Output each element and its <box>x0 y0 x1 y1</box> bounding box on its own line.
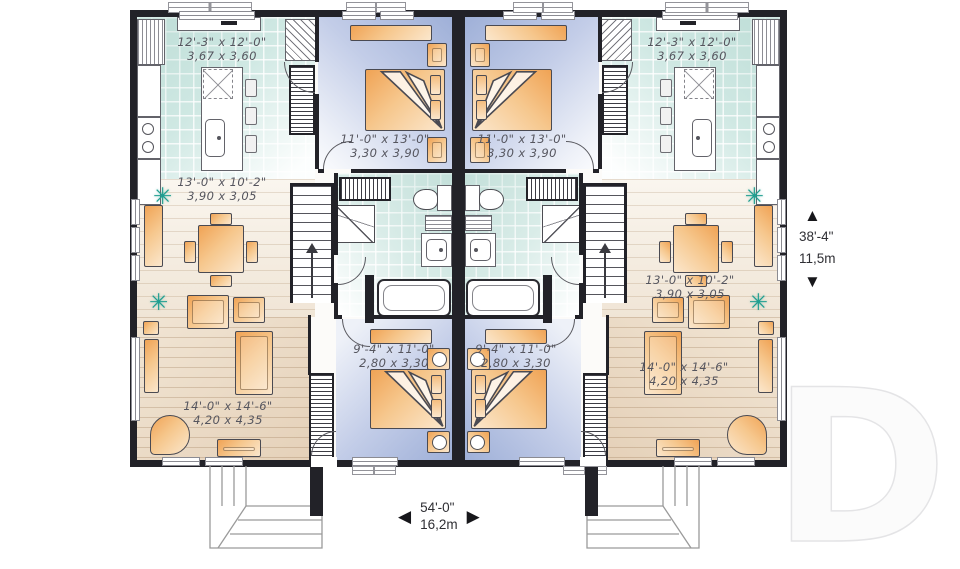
bath-closet <box>526 177 578 201</box>
room-label-kitchen-right: 12'-3" x 12'-0"3,67 x 3,60 <box>647 36 736 63</box>
burner-icon <box>763 141 775 153</box>
kitchen-cabinet <box>756 65 780 117</box>
unit-left: ✳ <box>137 17 452 460</box>
arrow-left-icon: ◀ <box>398 508 411 525</box>
stool-icon <box>245 107 257 125</box>
dresser <box>485 25 567 41</box>
burner-icon <box>142 123 154 135</box>
fridge-icon <box>137 19 165 65</box>
room-label-living-left: 14'-0" x 14'-6"4,20 x 4,35 <box>183 400 272 427</box>
entry-wall-stub-left <box>310 467 323 516</box>
overall-depth-dimension: ▲ 38'-4" 11,5m ▼ <box>799 207 836 290</box>
dining-chair <box>210 213 232 225</box>
toilet-tank <box>465 185 480 211</box>
room-label-dining-left: 13'-0" x 10'-2"3,90 x 3,05 <box>177 176 266 203</box>
fridge-icon <box>752 19 780 65</box>
stool-icon <box>660 79 672 97</box>
nightstand-lamp <box>467 431 490 453</box>
window <box>131 337 140 421</box>
arrow-down-icon: ▼ <box>804 273 821 290</box>
sideboard <box>144 205 163 267</box>
wall <box>579 283 583 319</box>
armchair <box>187 295 229 329</box>
stool-icon <box>245 135 257 153</box>
range-icon <box>680 21 696 25</box>
entry-wall-stub-right <box>585 467 598 516</box>
loveseat <box>235 331 273 395</box>
stool-icon <box>660 135 672 153</box>
window <box>352 457 398 466</box>
toilet-icon <box>479 189 504 210</box>
depth-metric: 11,5m <box>799 251 836 268</box>
window <box>519 457 565 466</box>
window <box>342 11 376 20</box>
window <box>777 227 786 253</box>
tv-bench <box>217 439 261 457</box>
range-icon <box>221 21 237 25</box>
pantry-hatch <box>600 19 632 61</box>
window <box>777 199 786 225</box>
front-door-opening <box>311 457 337 467</box>
room-label-bedroom1-left: 11'-0" x 13'-0"3,30 x 3,90 <box>340 133 429 160</box>
plant-icon: ✳ <box>153 185 172 208</box>
stool-icon <box>245 79 257 97</box>
island-open-area <box>684 69 714 99</box>
nightstand <box>427 137 447 163</box>
vanity-cabinet <box>425 215 452 231</box>
window <box>777 255 786 281</box>
toilet-icon <box>413 189 438 210</box>
floor-plan-stage: D <box>0 0 960 569</box>
window <box>777 337 786 421</box>
wall <box>593 169 599 173</box>
nightstand <box>470 43 490 67</box>
overall-width-dimension: ◀ 54'-0" 16,2m ▶ <box>398 500 480 534</box>
burner-icon <box>763 123 775 135</box>
bed <box>472 69 552 131</box>
brand-watermark-letter: D <box>772 378 948 558</box>
stair-direction-arrow <box>311 252 313 298</box>
plant-icon: ✳ <box>749 291 768 314</box>
wall <box>579 173 583 255</box>
bed <box>370 369 446 429</box>
bed <box>365 69 445 131</box>
window-sill <box>513 2 573 13</box>
unit-right: ✳ <box>465 17 780 460</box>
bed <box>471 369 547 429</box>
wall <box>334 173 338 255</box>
dining-chair <box>184 241 196 263</box>
burner-icon <box>142 141 154 153</box>
wall <box>575 315 581 319</box>
room-label-kitchen-left: 12'-3" x 12'-0"3,67 x 3,60 <box>177 36 266 63</box>
dining-chair <box>685 213 707 225</box>
plant-icon: ✳ <box>745 185 764 208</box>
kitchen-cabinet <box>137 65 161 117</box>
wall <box>465 169 566 173</box>
nightstand <box>427 43 447 67</box>
arrow-up-icon: ▲ <box>804 207 821 224</box>
bookcase <box>758 339 773 393</box>
window <box>380 11 414 20</box>
width-metric: 16,2m <box>420 517 458 534</box>
staircase <box>583 183 627 303</box>
depth-imperial: 38'-4" <box>799 229 833 246</box>
window <box>205 457 243 466</box>
porch-right <box>585 466 701 550</box>
dining-chair <box>659 241 671 263</box>
window <box>131 227 140 253</box>
porch-left <box>208 466 324 550</box>
window <box>674 457 712 466</box>
bath-sink-icon <box>470 239 491 261</box>
room-label-bedroom2-left: 9'-4" x 11'-0"2,80 x 3,30 <box>353 343 435 370</box>
pantry-hatch <box>285 19 317 61</box>
window <box>131 255 140 281</box>
corner-shower <box>542 205 580 243</box>
party-wall <box>452 17 465 460</box>
island-open-area <box>203 69 233 99</box>
dresser <box>350 25 432 41</box>
window-sill <box>665 2 749 13</box>
window-sill <box>352 466 396 475</box>
wall <box>598 17 602 62</box>
room-label-bedroom2-right: 9'-4" x 11'-0"2,80 x 3,30 <box>475 343 557 370</box>
vanity-cabinet <box>465 215 492 231</box>
room-label-living-right: 14'-0" x 14'-6"4,20 x 4,35 <box>639 361 728 388</box>
dining-chair <box>246 241 258 263</box>
bath-sink-icon <box>426 239 447 261</box>
dining-table <box>198 225 244 273</box>
dining-chair <box>210 275 232 287</box>
wall <box>606 315 609 375</box>
sideboard <box>754 205 773 267</box>
wall <box>351 169 452 173</box>
width-imperial: 54'-0" <box>420 500 458 517</box>
wall <box>465 315 547 319</box>
side-table <box>233 297 265 323</box>
dining-table <box>673 225 719 273</box>
plant-icon: ✳ <box>149 291 168 314</box>
window <box>131 199 140 225</box>
tv-bench <box>656 439 700 457</box>
wall <box>336 315 342 319</box>
wall <box>318 169 324 173</box>
room-label-dining-right: 13'-0" x 10'-2"3,90 x 3,05 <box>645 274 734 301</box>
wall <box>334 283 338 319</box>
dining-chair <box>721 241 733 263</box>
floor-lamp <box>758 321 774 335</box>
nightstand-lamp <box>427 431 450 453</box>
window <box>179 11 255 20</box>
wall <box>315 17 319 62</box>
arrow-right-icon: ▶ <box>467 508 480 525</box>
floor-lamp <box>143 321 159 335</box>
bath-closet <box>339 177 391 201</box>
wall <box>315 94 319 169</box>
wall <box>370 315 452 319</box>
stool-icon <box>660 107 672 125</box>
window <box>717 457 755 466</box>
bookcase <box>144 339 159 393</box>
window <box>162 457 200 466</box>
bathtub-icon <box>466 279 540 317</box>
wall <box>308 315 311 375</box>
room-label-bedroom1-right: 11'-0" x 13'-0"3,30 x 3,90 <box>477 133 566 160</box>
corner-shower <box>337 205 375 243</box>
stair-direction-arrow <box>604 252 606 298</box>
kitchen-sink-icon <box>205 119 225 157</box>
kitchen-sink-icon <box>692 119 712 157</box>
wall <box>598 94 602 169</box>
bathtub-icon <box>377 279 451 317</box>
staircase <box>290 183 334 303</box>
toilet-tank <box>437 185 452 211</box>
round-chair <box>727 415 767 455</box>
